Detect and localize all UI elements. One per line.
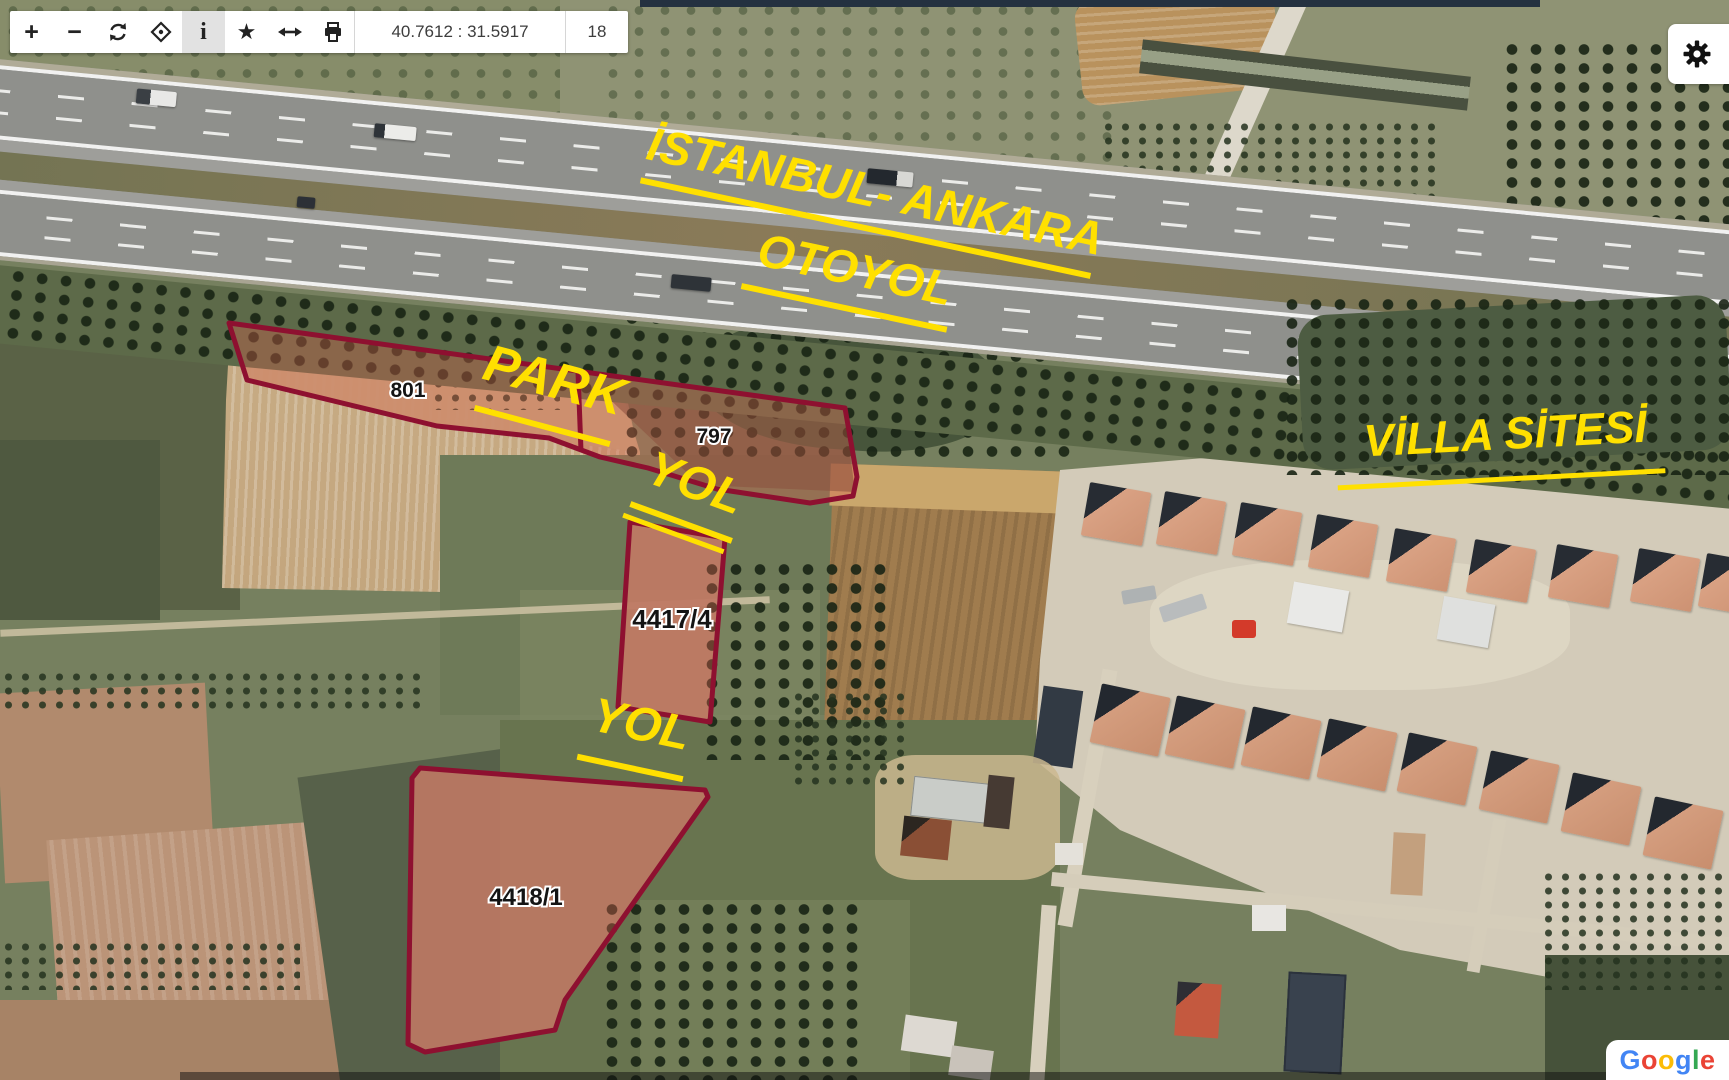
- google-logo-letter: e: [1700, 1045, 1716, 1076]
- star-icon: ★: [237, 19, 257, 45]
- horizontal-arrows-icon: [277, 20, 303, 44]
- minus-icon: −: [67, 20, 82, 45]
- plus-icon: +: [24, 20, 39, 45]
- map-canvas[interactable]: İSTANBUL- ANKARA OTOYOL PARK YOL YOL VİL…: [0, 0, 1729, 1080]
- parcel-id-797: 797: [696, 425, 731, 448]
- parcel-id-801: 801: [390, 379, 425, 402]
- google-logo-letter: G: [1619, 1045, 1641, 1076]
- label-highway-2: OTOYOL: [741, 220, 960, 329]
- zoom-out-button[interactable]: −: [53, 11, 96, 53]
- info-icon: i: [200, 19, 207, 46]
- print-button[interactable]: [311, 11, 354, 53]
- highway-label-line2: OTOYOL: [753, 222, 957, 315]
- settings-button[interactable]: [1668, 24, 1729, 84]
- google-logo-letter: g: [1675, 1045, 1692, 1076]
- google-logo-letter: l: [1692, 1045, 1700, 1076]
- center-map-icon: [149, 20, 173, 44]
- favorites-button[interactable]: ★: [225, 11, 268, 53]
- extent-arrows-button[interactable]: [268, 11, 311, 53]
- zoom-in-button[interactable]: +: [10, 11, 53, 53]
- google-attribution: Google: [1606, 1040, 1729, 1080]
- refresh-icon: [106, 20, 130, 44]
- google-logo-letter: o: [1641, 1045, 1658, 1076]
- parcel-overlay: İSTANBUL- ANKARA OTOYOL PARK YOL YOL VİL…: [0, 0, 1729, 1080]
- highway-label-line1: İSTANBUL- ANKARA: [643, 117, 1109, 265]
- google-logo-letter: o: [1658, 1045, 1675, 1076]
- refresh-button[interactable]: [96, 11, 139, 53]
- label-villa: VİLLA SİTESİ: [1334, 400, 1665, 488]
- center-map-button[interactable]: [139, 11, 182, 53]
- coordinates-display: 40.7612 : 31.5917: [354, 11, 565, 53]
- map-toolbar: + − i ★ 40.7612 : 31.5917 18: [10, 11, 628, 53]
- gear-icon: [1680, 37, 1714, 71]
- parcel-id-4417-4: 4417/4: [632, 604, 712, 634]
- info-button[interactable]: i: [182, 11, 225, 53]
- villa-label: VİLLA SİTESİ: [1362, 401, 1650, 467]
- parcel-id-4418-1: 4418/1: [489, 884, 562, 911]
- printer-icon: [321, 20, 345, 44]
- zoom-level-display: 18: [565, 11, 628, 53]
